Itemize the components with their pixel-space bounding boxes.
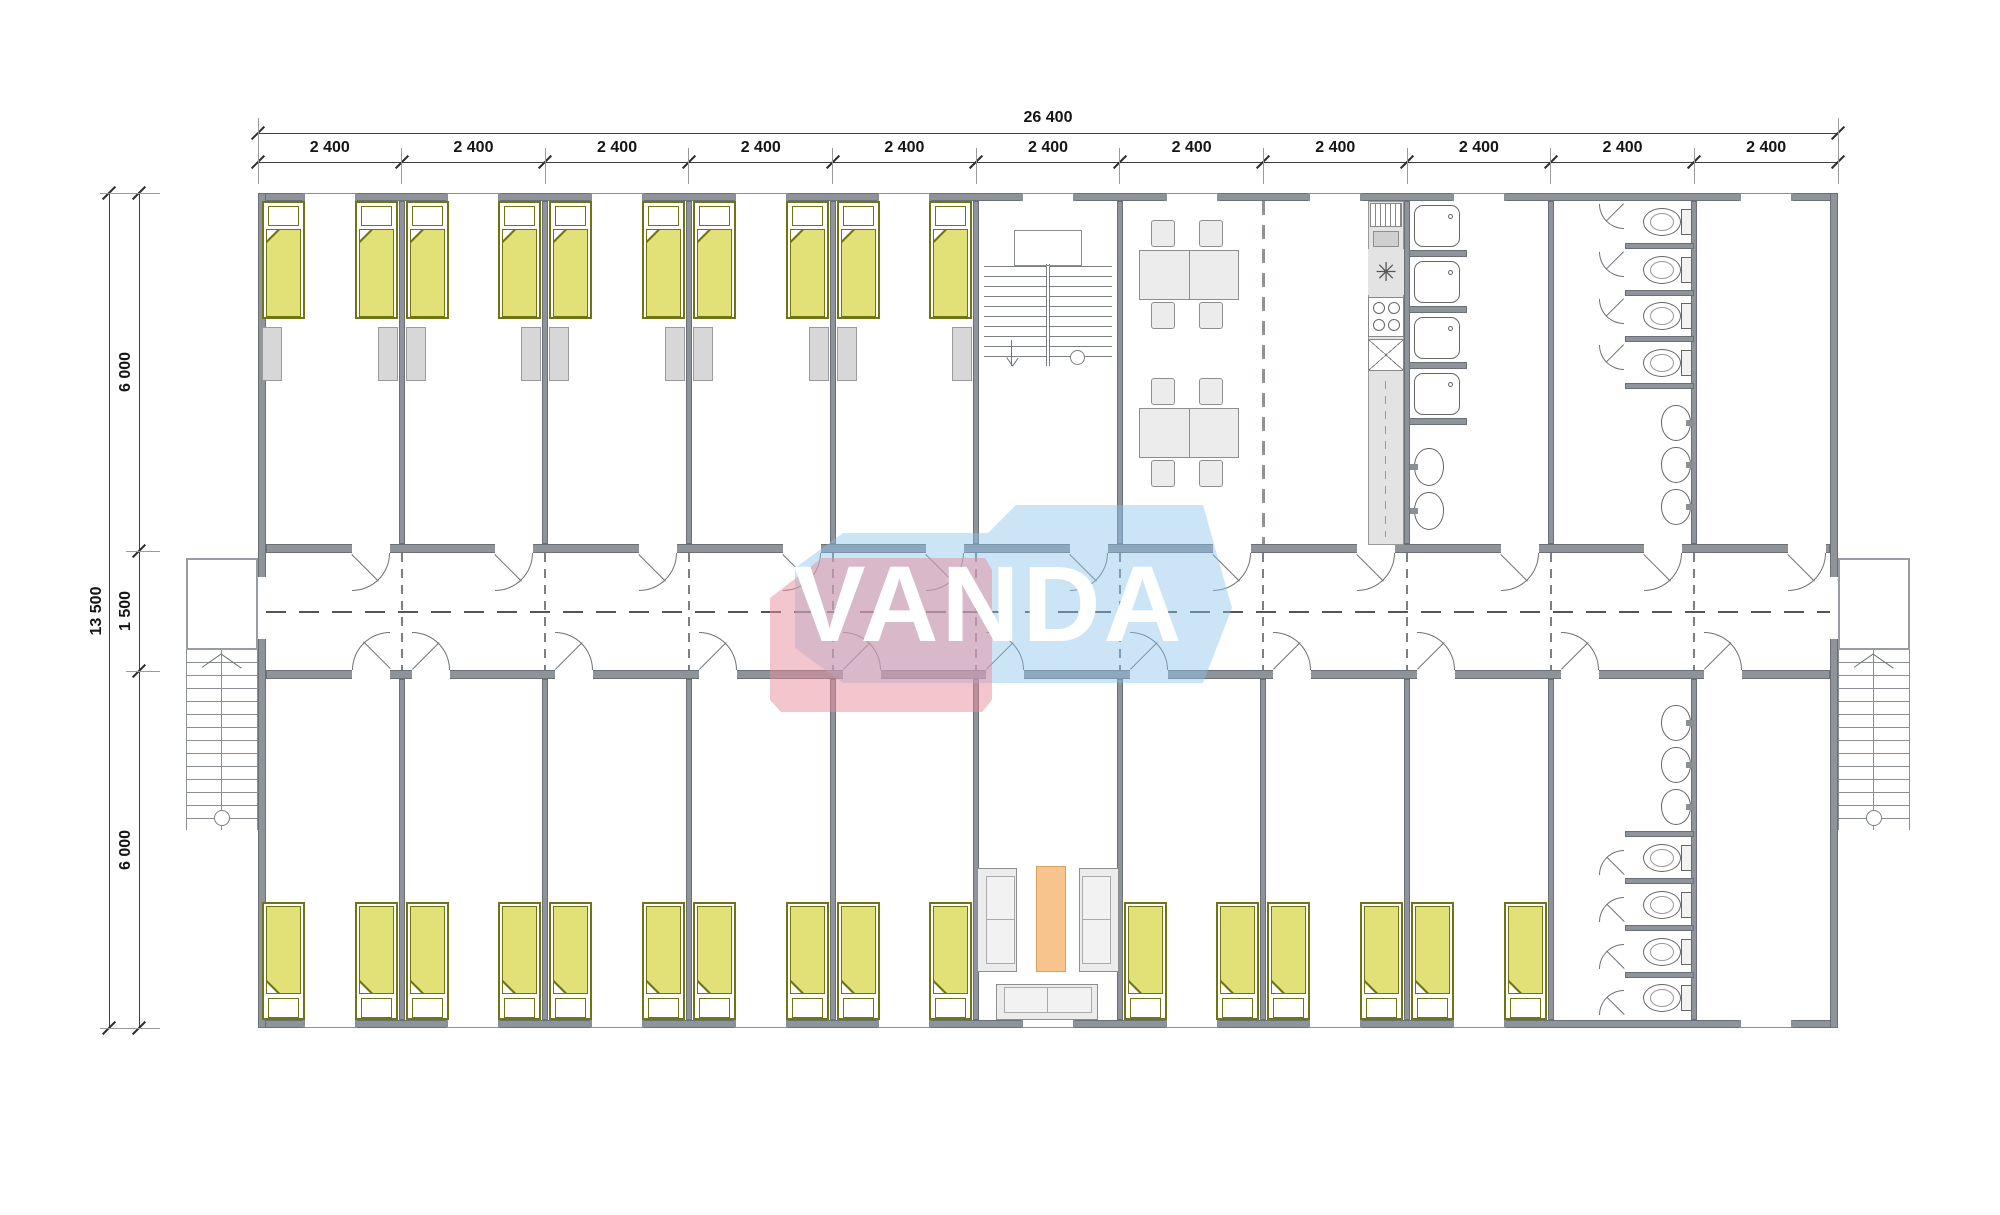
- fridge-icon: [1370, 203, 1402, 227]
- door-arc: [352, 632, 390, 670]
- bed-pillow: [361, 998, 392, 1018]
- locker-icon: [693, 327, 713, 381]
- shower-drain: [1448, 214, 1453, 219]
- bed-blanket: [266, 906, 301, 994]
- wash-basin-icon: [1414, 492, 1444, 530]
- sofa-icon: [977, 868, 1017, 972]
- bed-pillow: [648, 998, 679, 1018]
- blanket-fold-inner: [503, 230, 513, 240]
- toilet-tank: [1681, 350, 1692, 376]
- toilet-bowl-inner: [1650, 261, 1674, 279]
- bed-icon: [786, 201, 829, 319]
- blanket-fold-inner: [1365, 983, 1375, 993]
- window-top: [1452, 193, 1506, 201]
- sofa-seat-split: [1082, 919, 1111, 920]
- locker-icon: [952, 327, 972, 381]
- bed-blanket: [1415, 906, 1450, 994]
- bed-blanket: [841, 906, 876, 994]
- bed-icon: [498, 902, 541, 1020]
- kitchen-box-icon: [1373, 231, 1399, 247]
- blanket-fold-inner: [1129, 983, 1139, 993]
- bed-blanket: [553, 229, 588, 317]
- basin-tap: [1410, 508, 1418, 514]
- door-opening-exterior-left: [258, 577, 266, 639]
- stall-door-arc: [1599, 204, 1624, 229]
- bay-axis-dashed: [832, 553, 834, 670]
- bed-icon: [1267, 902, 1310, 1020]
- window-bottom: [303, 1020, 357, 1028]
- bed-blanket: [933, 906, 968, 994]
- window-bottom: [734, 1020, 788, 1028]
- bed-pillow: [792, 998, 823, 1018]
- window-top: [1021, 193, 1075, 201]
- stall-partition: [1625, 831, 1694, 837]
- window-bottom: [1165, 1020, 1219, 1028]
- blanket-fold-inner: [791, 230, 801, 240]
- bed-blanket: [502, 229, 537, 317]
- bed-icon: [786, 902, 829, 1020]
- door-opening-bottom: [1561, 670, 1599, 679]
- door-opening-top: [926, 544, 964, 553]
- bed-icon: [1216, 902, 1259, 1020]
- blanket-fold-inner: [791, 983, 801, 993]
- partition-wall-top: [686, 201, 692, 544]
- sofa-seat: [986, 876, 1015, 964]
- dining-table-icon: [1139, 408, 1239, 458]
- door-opening-bottom: [699, 670, 737, 679]
- dim-extension: [126, 671, 160, 672]
- stairs-rail: [1046, 264, 1050, 366]
- shower-partition: [1409, 250, 1467, 257]
- dim-extension: [401, 148, 402, 184]
- bed-icon: [1411, 902, 1454, 1020]
- bed-icon: [837, 201, 880, 319]
- locker-icon: [809, 327, 829, 381]
- bed-pillow: [1222, 998, 1253, 1018]
- door-opening-top: [1213, 544, 1251, 553]
- door-arc: [926, 553, 964, 591]
- bed-icon: [262, 201, 305, 319]
- door-opening-exterior-right: [1830, 577, 1838, 639]
- chair-icon: [1199, 378, 1223, 405]
- sofa-icon: [996, 984, 1098, 1020]
- bed-pillow: [843, 998, 874, 1018]
- dim-extension: [100, 1028, 160, 1029]
- bed-blanket: [697, 229, 732, 317]
- corridor-center-axis: [266, 611, 1830, 613]
- blanket-fold-inner: [698, 230, 708, 240]
- basin-tap: [1686, 762, 1694, 768]
- door-opening-bottom: [986, 670, 1024, 679]
- window-top: [303, 193, 357, 201]
- burner: [1388, 302, 1400, 314]
- exterior-stairs: [186, 650, 258, 830]
- window-bottom: [877, 1020, 931, 1028]
- stairs-end-marker: [214, 810, 230, 826]
- bed-icon: [929, 902, 972, 1020]
- shower-drain: [1448, 270, 1453, 275]
- dim-label-segment-height: 1 500: [118, 591, 134, 631]
- door-arc: [1788, 553, 1826, 591]
- chair-icon: [1151, 220, 1175, 247]
- dim-extension: [1838, 118, 1839, 150]
- chair-icon: [1199, 220, 1223, 247]
- bed-icon: [498, 201, 541, 319]
- window-bottom: [446, 1020, 500, 1028]
- dim-label-bay-width: 2 400: [884, 140, 924, 156]
- bed-pillow: [268, 998, 299, 1018]
- bed-blanket: [841, 229, 876, 317]
- bed-pillow: [843, 206, 874, 226]
- table-split-line: [1189, 409, 1190, 457]
- bay-axis-dashed: [544, 553, 546, 670]
- bed-blanket: [359, 906, 394, 994]
- blanket-fold-inner: [554, 983, 564, 993]
- partition-wall-bottom: [542, 679, 548, 1020]
- dim-extension: [976, 148, 977, 184]
- toilet-tank: [1681, 303, 1692, 329]
- blanket-fold-inner: [411, 983, 421, 993]
- dim-extension: [688, 148, 689, 184]
- stall-partition: [1625, 878, 1694, 884]
- basin-tap: [1686, 462, 1694, 468]
- toilet-tank: [1681, 939, 1692, 965]
- locker-icon: [378, 327, 398, 381]
- dim-label-bay-width: 2 400: [310, 140, 350, 156]
- bed-icon: [837, 902, 880, 1020]
- sofa-seat: [1082, 876, 1111, 964]
- left-total-dim-line: [109, 193, 110, 1028]
- dim-extension: [100, 193, 160, 194]
- dim-label-total-height: 13 500: [89, 586, 105, 635]
- window-top: [877, 193, 931, 201]
- bed-blanket: [646, 229, 681, 317]
- table-split-line: [1189, 251, 1190, 299]
- partition-wall-bottom: [1548, 679, 1554, 1020]
- window-bottom: [1739, 1020, 1793, 1028]
- sofa-seat-split: [1047, 987, 1048, 1013]
- toilet-bowl-inner: [1650, 213, 1674, 231]
- door-opening-bottom: [352, 670, 390, 679]
- bed-icon: [262, 902, 305, 1020]
- door-opening-top: [1501, 544, 1539, 553]
- shower-drain: [1448, 326, 1453, 331]
- door-opening-top: [495, 544, 533, 553]
- dim-label-bay-width: 2 400: [1315, 140, 1355, 156]
- chair-icon: [1151, 378, 1175, 405]
- shower-tray-icon: [1414, 205, 1460, 247]
- bed-blanket: [790, 906, 825, 994]
- stall-partition: [1625, 290, 1694, 296]
- stall-partition: [1625, 336, 1694, 342]
- door-arc: [1273, 632, 1311, 670]
- left-segment-dim-line: [139, 193, 140, 1028]
- rug-icon: [1036, 866, 1066, 972]
- bed-pillow: [555, 206, 586, 226]
- dim-label-segment-height: 6 000: [118, 352, 134, 392]
- partition-wall-top: [1548, 201, 1554, 544]
- bed-blanket: [1220, 906, 1255, 994]
- window-top: [734, 193, 788, 201]
- bed-blanket: [1508, 906, 1543, 994]
- sofa-seat: [1004, 987, 1092, 1013]
- top-total-dim-line: [258, 133, 1838, 134]
- counter-dashed-line: [1385, 381, 1386, 537]
- window-top: [1308, 193, 1362, 201]
- bed-icon: [693, 201, 736, 319]
- bay-axis-dashed: [1119, 553, 1121, 670]
- toilet-bowl-inner: [1650, 354, 1674, 372]
- door-opening-bottom: [555, 670, 593, 679]
- bed-blanket: [359, 229, 394, 317]
- kitchen-sink-icon: [1368, 339, 1404, 371]
- bed-blanket: [410, 229, 445, 317]
- partition-dashed-top: [1262, 201, 1265, 544]
- door-opening-bottom: [1130, 670, 1168, 679]
- sofa-icon: [1079, 868, 1119, 972]
- bay-axis-dashed: [1262, 553, 1264, 670]
- dim-extension: [1119, 148, 1120, 184]
- bay-axis-dashed: [1550, 553, 1552, 670]
- shower-drain: [1448, 382, 1453, 387]
- burner: [1388, 319, 1400, 331]
- bed-icon: [642, 902, 685, 1020]
- dim-extension: [126, 551, 160, 552]
- bay-axis-dashed: [401, 553, 403, 670]
- partition-wall-bottom: [686, 679, 692, 1020]
- door-opening-bottom: [1273, 670, 1311, 679]
- locker-icon: [665, 327, 685, 381]
- floorplan-canvas: 26 4002 4002 4002 4002 4002 4002 4002 40…: [0, 0, 2000, 1215]
- stairs-railing-outline: [1014, 230, 1082, 266]
- bed-pillow: [504, 206, 535, 226]
- dim-extension: [832, 148, 833, 184]
- door-opening-top: [1644, 544, 1682, 553]
- chair-icon: [1151, 302, 1175, 329]
- stall-partition: [1625, 383, 1694, 389]
- entry-landing-right: [1838, 558, 1910, 650]
- dim-extension: [1550, 148, 1551, 184]
- dim-extension: [545, 148, 546, 184]
- bed-pillow: [935, 998, 966, 1018]
- stairs-center-line: [221, 650, 222, 830]
- stall-partition: [1625, 972, 1694, 978]
- partition-wall-bottom: [399, 679, 405, 1020]
- dim-label-bay-width: 2 400: [1746, 140, 1786, 156]
- blanket-fold-inner: [360, 983, 370, 993]
- bed-icon: [355, 201, 398, 319]
- bed-pillow: [935, 206, 966, 226]
- door-opening-top: [639, 544, 677, 553]
- chair-icon: [1199, 460, 1223, 487]
- bed-pillow: [699, 998, 730, 1018]
- watermark-pink-banner: [0, 0, 2000, 1215]
- door-opening-bottom: [1704, 670, 1742, 679]
- bay-axis-dashed: [975, 553, 977, 670]
- bay-axis-dashed: [1406, 553, 1408, 670]
- bed-pillow: [361, 206, 392, 226]
- basin-tap: [1686, 420, 1694, 426]
- window-bottom: [590, 1020, 644, 1028]
- basin-tap: [1686, 720, 1694, 726]
- bed-icon: [1124, 902, 1167, 1020]
- bed-blanket: [790, 229, 825, 317]
- bay-axis-dashed: [1693, 553, 1695, 670]
- bed-pillow: [792, 206, 823, 226]
- window-bottom: [1021, 1020, 1075, 1028]
- door-opening-bottom: [1417, 670, 1455, 679]
- stall-door-arc: [1599, 345, 1624, 370]
- bed-icon: [693, 902, 736, 1020]
- bed-icon: [1504, 902, 1547, 1020]
- window-bottom: [1308, 1020, 1362, 1028]
- blanket-fold-inner: [554, 230, 564, 240]
- bed-blanket: [697, 906, 732, 994]
- window-top: [1165, 193, 1219, 201]
- burner: [1373, 302, 1385, 314]
- dim-label-bay-width: 2 400: [453, 140, 493, 156]
- dim-label-total-width: 26 400: [1024, 110, 1073, 126]
- window-top: [446, 193, 500, 201]
- dim-extension: [1838, 148, 1839, 184]
- toilet-bowl-inner: [1650, 896, 1674, 914]
- window-top: [590, 193, 644, 201]
- locker-icon: [549, 327, 569, 381]
- door-arc: [1357, 553, 1395, 591]
- window-bottom: [1452, 1020, 1506, 1028]
- blanket-fold-inner: [503, 983, 513, 993]
- bed-pillow: [504, 998, 535, 1018]
- shower-partition: [1409, 362, 1467, 369]
- bed-icon: [355, 902, 398, 1020]
- blanket-fold-inner: [934, 230, 944, 240]
- sofa-seat-split: [986, 919, 1015, 920]
- door-arc: [1213, 553, 1251, 591]
- door-opening-bottom: [412, 670, 450, 679]
- shower-tray-icon: [1414, 261, 1460, 303]
- basin-tap: [1686, 804, 1694, 810]
- toilet-tank: [1681, 892, 1692, 918]
- bed-pillow: [1273, 998, 1304, 1018]
- door-arc: [1644, 553, 1682, 591]
- window-top: [1739, 193, 1793, 201]
- top-segment-dim-line: [258, 162, 1838, 163]
- dim-label-bay-width: 2 400: [597, 140, 637, 156]
- dim-extension: [258, 148, 259, 184]
- bed-blanket: [1271, 906, 1306, 994]
- toilet-bowl-inner: [1650, 849, 1674, 867]
- entry-landing-left: [186, 558, 258, 650]
- bed-icon: [642, 201, 685, 319]
- blanket-fold-inner: [647, 230, 657, 240]
- exterior-stairs: [1838, 650, 1910, 830]
- wash-basin-icon: [1414, 448, 1444, 486]
- door-opening-top: [352, 544, 390, 553]
- shower-tray-icon: [1414, 317, 1460, 359]
- locker-icon: [837, 327, 857, 381]
- dim-label-bay-width: 2 400: [1459, 140, 1499, 156]
- door-opening-bottom: [843, 670, 881, 679]
- toilet-bowl-inner: [1650, 307, 1674, 325]
- blanket-fold-inner: [1272, 983, 1282, 993]
- basin-tap: [1686, 504, 1694, 510]
- blanket-fold-inner: [267, 983, 277, 993]
- bed-blanket: [1364, 906, 1399, 994]
- partition-wall-bottom: [830, 679, 836, 1020]
- bed-pillow: [648, 206, 679, 226]
- dim-label-segment-height: 6 000: [118, 829, 134, 869]
- blanket-fold-inner: [1221, 983, 1231, 993]
- partition-wall-top: [830, 201, 836, 544]
- partition-wall-top: [1691, 201, 1697, 544]
- blanket-fold-inner: [267, 230, 277, 240]
- blanket-fold-inner: [934, 983, 944, 993]
- shower-tray-icon: [1414, 373, 1460, 415]
- worktop-icon: ✳: [1368, 249, 1404, 295]
- blanket-fold-inner: [842, 983, 852, 993]
- stall-partition: [1625, 925, 1694, 931]
- burner: [1373, 319, 1385, 331]
- partition-wall-top: [1117, 201, 1123, 544]
- toilet-tank: [1681, 257, 1692, 283]
- partition-wall-top: [973, 201, 979, 544]
- dim-label-bay-width: 2 400: [741, 140, 781, 156]
- partition-wall-bottom: [1691, 679, 1697, 1020]
- dim-extension: [1407, 148, 1408, 184]
- dim-label-bay-width: 2 400: [1603, 140, 1643, 156]
- door-opening-top: [1788, 544, 1826, 553]
- bed-blanket: [933, 229, 968, 317]
- stall-partition: [1625, 243, 1694, 249]
- toilet-bowl-inner: [1650, 989, 1674, 1007]
- bed-blanket: [646, 906, 681, 994]
- door-opening-top: [783, 544, 821, 553]
- dim-extension: [1694, 148, 1695, 184]
- bed-icon: [406, 201, 449, 319]
- stairs-center-line: [1873, 650, 1874, 830]
- bed-blanket: [553, 906, 588, 994]
- door-arc: [495, 553, 533, 591]
- vanda-watermark: VANDA: [0, 0, 2000, 1215]
- watermark-blue-banner: [0, 0, 2000, 1215]
- bed-icon: [406, 902, 449, 1020]
- blanket-fold-inner: [1416, 983, 1426, 993]
- blanket-fold-inner: [647, 983, 657, 993]
- dim-label-bay-width: 2 400: [1028, 140, 1068, 156]
- bed-icon: [549, 902, 592, 1020]
- partition-wall-top: [542, 201, 548, 544]
- dim-extension: [1263, 148, 1264, 184]
- blanket-fold-inner: [360, 230, 370, 240]
- bed-pillow: [1366, 998, 1397, 1018]
- bay-axis-dashed: [688, 553, 690, 670]
- dim-extension: [258, 118, 259, 150]
- dining-table-icon: [1139, 250, 1239, 300]
- stove-icon: [1368, 297, 1404, 337]
- partition-wall-bottom: [1404, 679, 1410, 1020]
- bed-icon: [549, 201, 592, 319]
- bed-pillow: [1510, 998, 1541, 1018]
- bed-pillow: [699, 206, 730, 226]
- blanket-fold-inner: [842, 230, 852, 240]
- locker-icon: [406, 327, 426, 381]
- chair-icon: [1151, 460, 1175, 487]
- bed-blanket: [266, 229, 301, 317]
- blanket-fold-inner: [411, 230, 421, 240]
- partition-wall-top: [399, 201, 405, 544]
- blanket-fold-inner: [698, 983, 708, 993]
- bed-icon: [1360, 902, 1403, 1020]
